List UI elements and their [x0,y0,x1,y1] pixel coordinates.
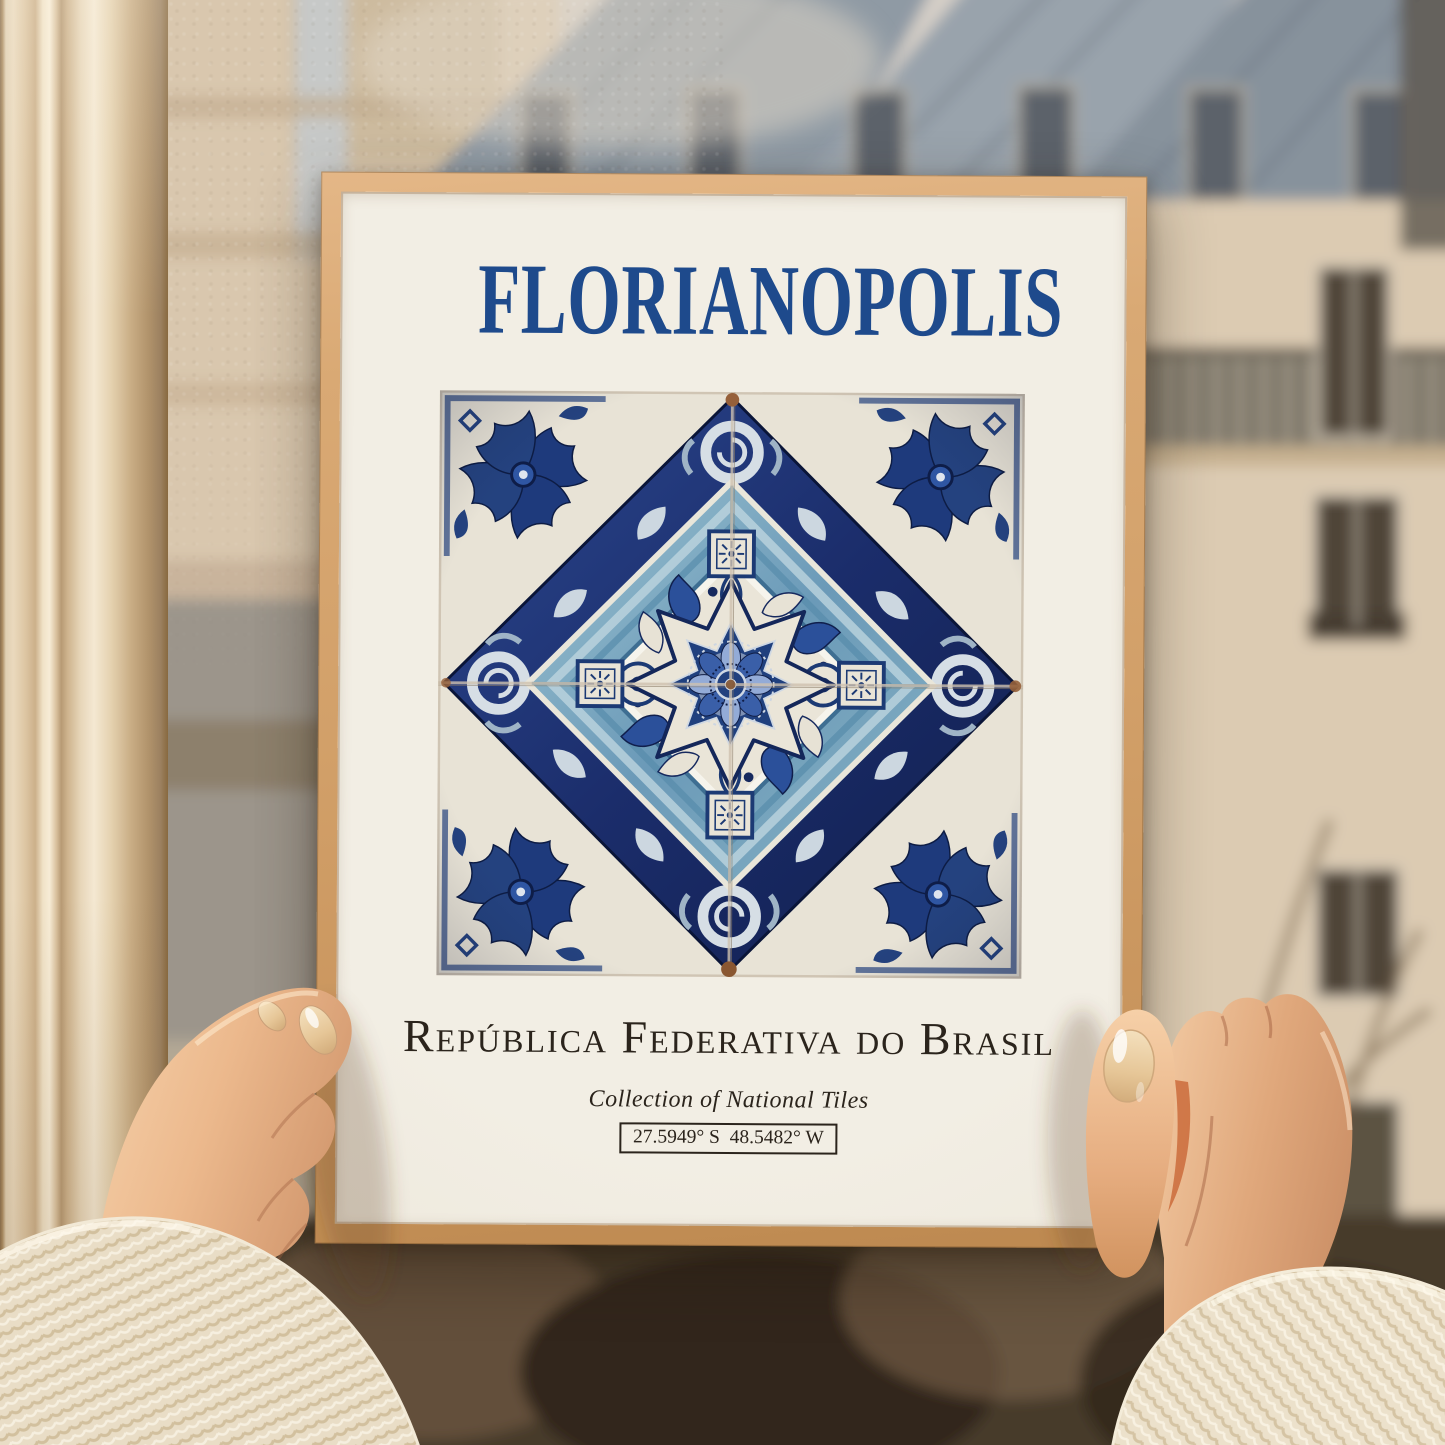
poster-paper: FLORIANOPOLIS [335,192,1127,1229]
azulejo-tile-artwork [436,390,1025,979]
coordinates-value: 27.5949° S 48.5482° W [619,1122,838,1154]
coordinates-box: 27.5949° S 48.5482° W [335,1121,1121,1157]
poster-frame: FLORIANOPOLIS [315,171,1148,1248]
poster-title-text: FLORIANOPOLIS [478,248,1064,353]
window-frame-left [0,0,168,1445]
scene-photo: FLORIANOPOLIS [0,0,1445,1445]
poster-title: FLORIANOPOLIS [340,248,1127,354]
poster-subtitle: República Federativa do Brasil [336,1008,1122,1068]
collection-label: Collection of National Tiles [336,1085,1122,1117]
